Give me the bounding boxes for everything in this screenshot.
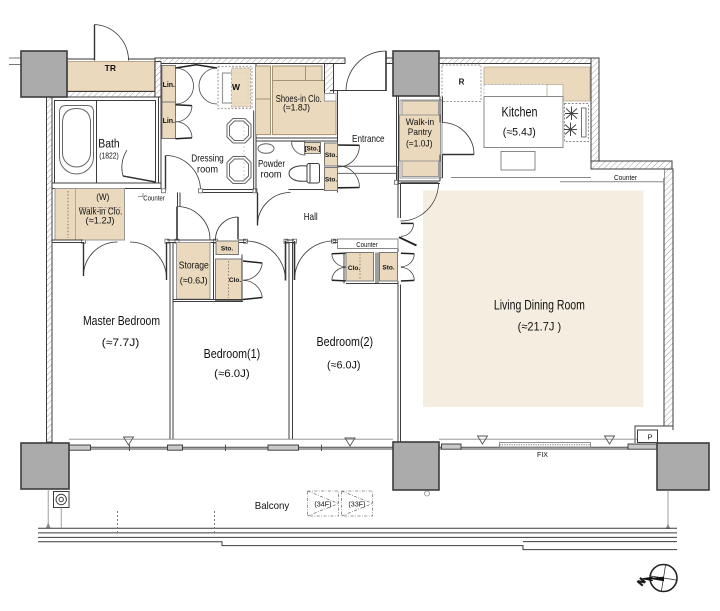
svg-text:W: W xyxy=(232,82,241,92)
svg-text:Pantry: Pantry xyxy=(408,127,432,138)
svg-text:Sto.: Sto. xyxy=(325,152,337,159)
svg-text:(≈1.0J): (≈1.0J) xyxy=(406,139,433,149)
svg-text:(≈21.7J ): (≈21.7J ) xyxy=(518,320,562,334)
svg-text:Bedroom(1): Bedroom(1) xyxy=(204,346,261,361)
svg-text:Storage: Storage xyxy=(179,261,209,272)
svg-text:(≈0.6J): (≈0.6J) xyxy=(180,276,208,287)
svg-text:Balcony: Balcony xyxy=(255,500,290,512)
svg-text:Counter: Counter xyxy=(356,240,378,249)
svg-text:Hall: Hall xyxy=(304,211,318,223)
svg-text:Master Bedroom: Master Bedroom xyxy=(83,313,160,328)
svg-text:Clo.: Clo. xyxy=(348,265,360,272)
svg-text:(33F): (33F) xyxy=(348,500,365,509)
svg-text:Living Dining Room: Living Dining Room xyxy=(494,297,585,313)
svg-text:Dressing: Dressing xyxy=(191,154,224,165)
svg-text:TR: TR xyxy=(105,63,116,73)
svg-text:(≈6.0J): (≈6.0J) xyxy=(327,360,361,372)
svg-text:[Sto.]: [Sto.] xyxy=(305,146,321,153)
svg-text:room: room xyxy=(261,170,282,181)
svg-text:R: R xyxy=(459,78,465,87)
svg-text:Lin.: Lin. xyxy=(163,82,175,89)
svg-text:(1822): (1822) xyxy=(99,152,119,161)
svg-text:(≈1.8J): (≈1.8J) xyxy=(283,103,310,113)
svg-text:Counter: Counter xyxy=(614,173,637,182)
svg-text:(≈5.4J): (≈5.4J) xyxy=(503,127,536,139)
svg-text:(34F): (34F) xyxy=(314,500,331,509)
svg-text:Counter: Counter xyxy=(143,194,165,203)
svg-text:Entrance: Entrance xyxy=(352,133,385,145)
svg-text:P: P xyxy=(647,433,652,442)
svg-text:Clo.: Clo. xyxy=(229,277,241,284)
svg-text:FIX: FIX xyxy=(537,452,548,459)
svg-text:Bath: Bath xyxy=(98,139,120,151)
svg-text:room: room xyxy=(197,165,218,176)
svg-text:(≈7.7J): (≈7.7J) xyxy=(102,337,140,349)
svg-text:Bedroom(2): Bedroom(2) xyxy=(317,334,374,349)
svg-text:(≈1.2J): (≈1.2J) xyxy=(86,216,115,227)
svg-text:Kitchen: Kitchen xyxy=(502,104,538,119)
svg-text:Sto.: Sto. xyxy=(325,177,337,184)
svg-text:Lin.: Lin. xyxy=(163,118,175,125)
svg-text:(≈6.0J): (≈6.0J) xyxy=(214,368,250,380)
svg-text:(W): (W) xyxy=(96,192,109,203)
svg-text:Sto.: Sto. xyxy=(382,265,394,272)
svg-text:Powder: Powder xyxy=(258,159,286,170)
svg-text:Sto.: Sto. xyxy=(221,246,233,253)
